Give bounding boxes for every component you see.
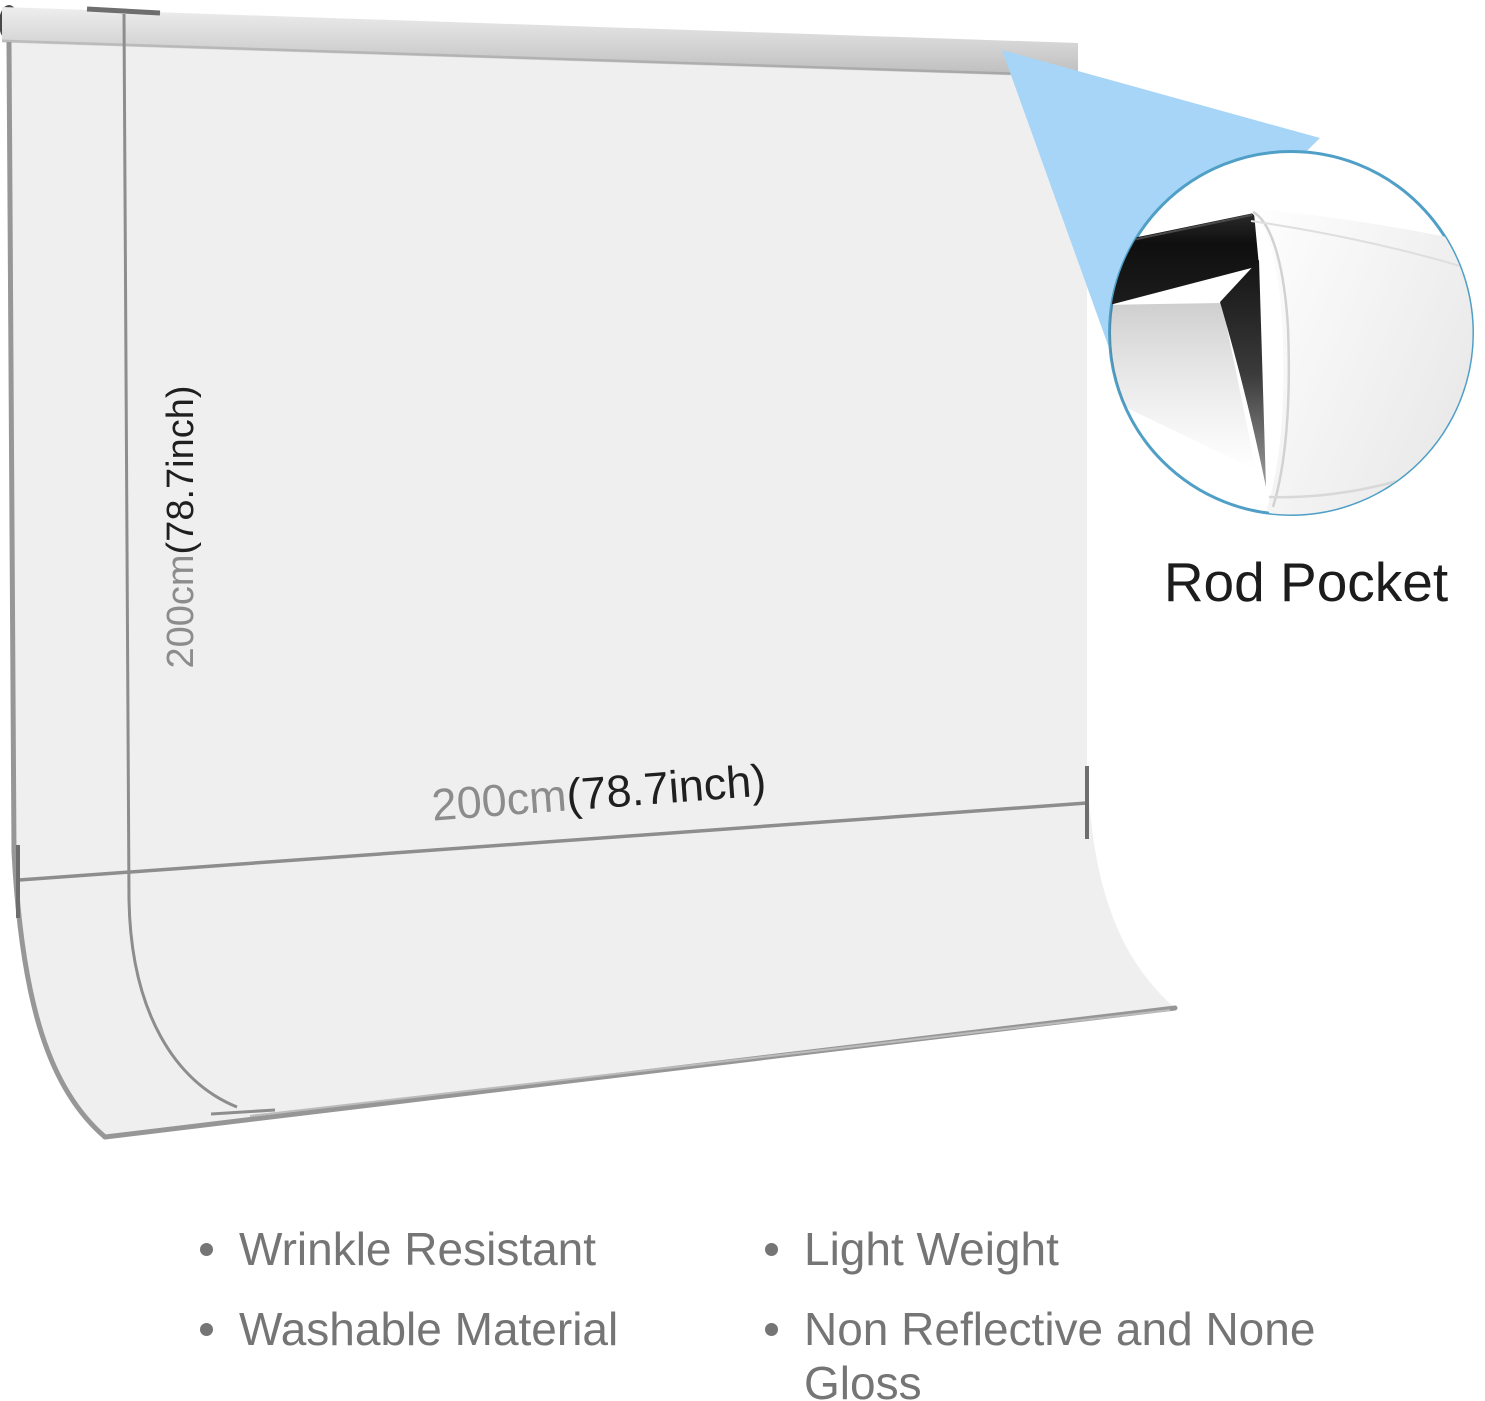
feature-label: Non Reflective and None Gloss <box>804 1302 1425 1401</box>
feature-list: Wrinkle Resistant Washable Material Ligh… <box>200 1222 1470 1401</box>
height-dimension-label: 200cm(78.7inch) <box>160 385 202 668</box>
height-imperial: (78.7inch) <box>160 385 202 554</box>
bullet-icon <box>765 1323 778 1336</box>
feature-label: Washable Material <box>239 1302 618 1356</box>
feature-item: Wrinkle Resistant <box>200 1222 765 1276</box>
feature-item: Light Weight <box>765 1222 1425 1276</box>
backdrop-diagram: 200cm(78.7inch) 200cm(78.7inch) Rod Pock… <box>0 0 1485 1401</box>
height-metric: 200cm <box>160 554 202 668</box>
product-diagram-page: 200cm(78.7inch) 200cm(78.7inch) Rod Pock… <box>0 0 1485 1401</box>
feature-column-right: Light Weight Non Reflective and None Glo… <box>765 1222 1425 1401</box>
feature-label: Wrinkle Resistant <box>239 1222 596 1276</box>
feature-item: Washable Material <box>200 1302 765 1356</box>
rod-pocket-label: Rod Pocket <box>1164 551 1448 613</box>
bullet-icon <box>200 1323 213 1336</box>
bullet-icon <box>765 1243 778 1256</box>
feature-item: Non Reflective and None Gloss <box>765 1302 1425 1401</box>
bullet-icon <box>200 1243 213 1256</box>
width-metric: 200cm <box>430 770 569 831</box>
feature-column-left: Wrinkle Resistant Washable Material <box>200 1222 765 1401</box>
feature-label: Light Weight <box>804 1222 1059 1276</box>
